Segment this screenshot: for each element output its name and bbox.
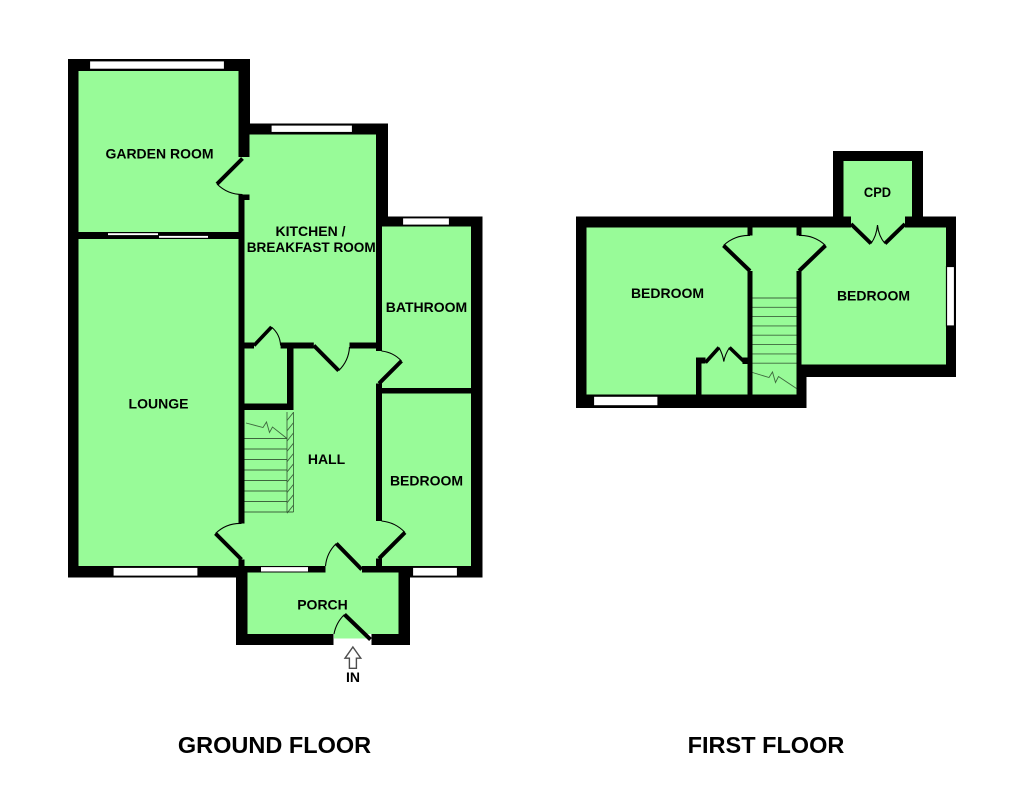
svg-text:GARDEN ROOM: GARDEN ROOM [105,146,213,162]
svg-text:CPD: CPD [864,185,891,201]
svg-text:BEDROOM: BEDROOM [837,288,910,304]
svg-text:LOUNGE: LOUNGE [129,396,189,412]
svg-text:PORCH: PORCH [297,597,348,613]
svg-text:BATHROOM: BATHROOM [386,299,467,315]
svg-text:KITCHEN /: KITCHEN / [276,223,346,239]
svg-text:FIRST FLOOR: FIRST FLOOR [688,732,845,758]
svg-text:BREAKFAST ROOM: BREAKFAST ROOM [247,240,376,255]
svg-text:BEDROOM: BEDROOM [390,473,463,489]
svg-text:GROUND FLOOR: GROUND FLOOR [178,732,371,758]
svg-text:HALL: HALL [308,451,346,467]
svg-text:IN: IN [346,669,360,685]
svg-text:BEDROOM: BEDROOM [631,285,704,301]
